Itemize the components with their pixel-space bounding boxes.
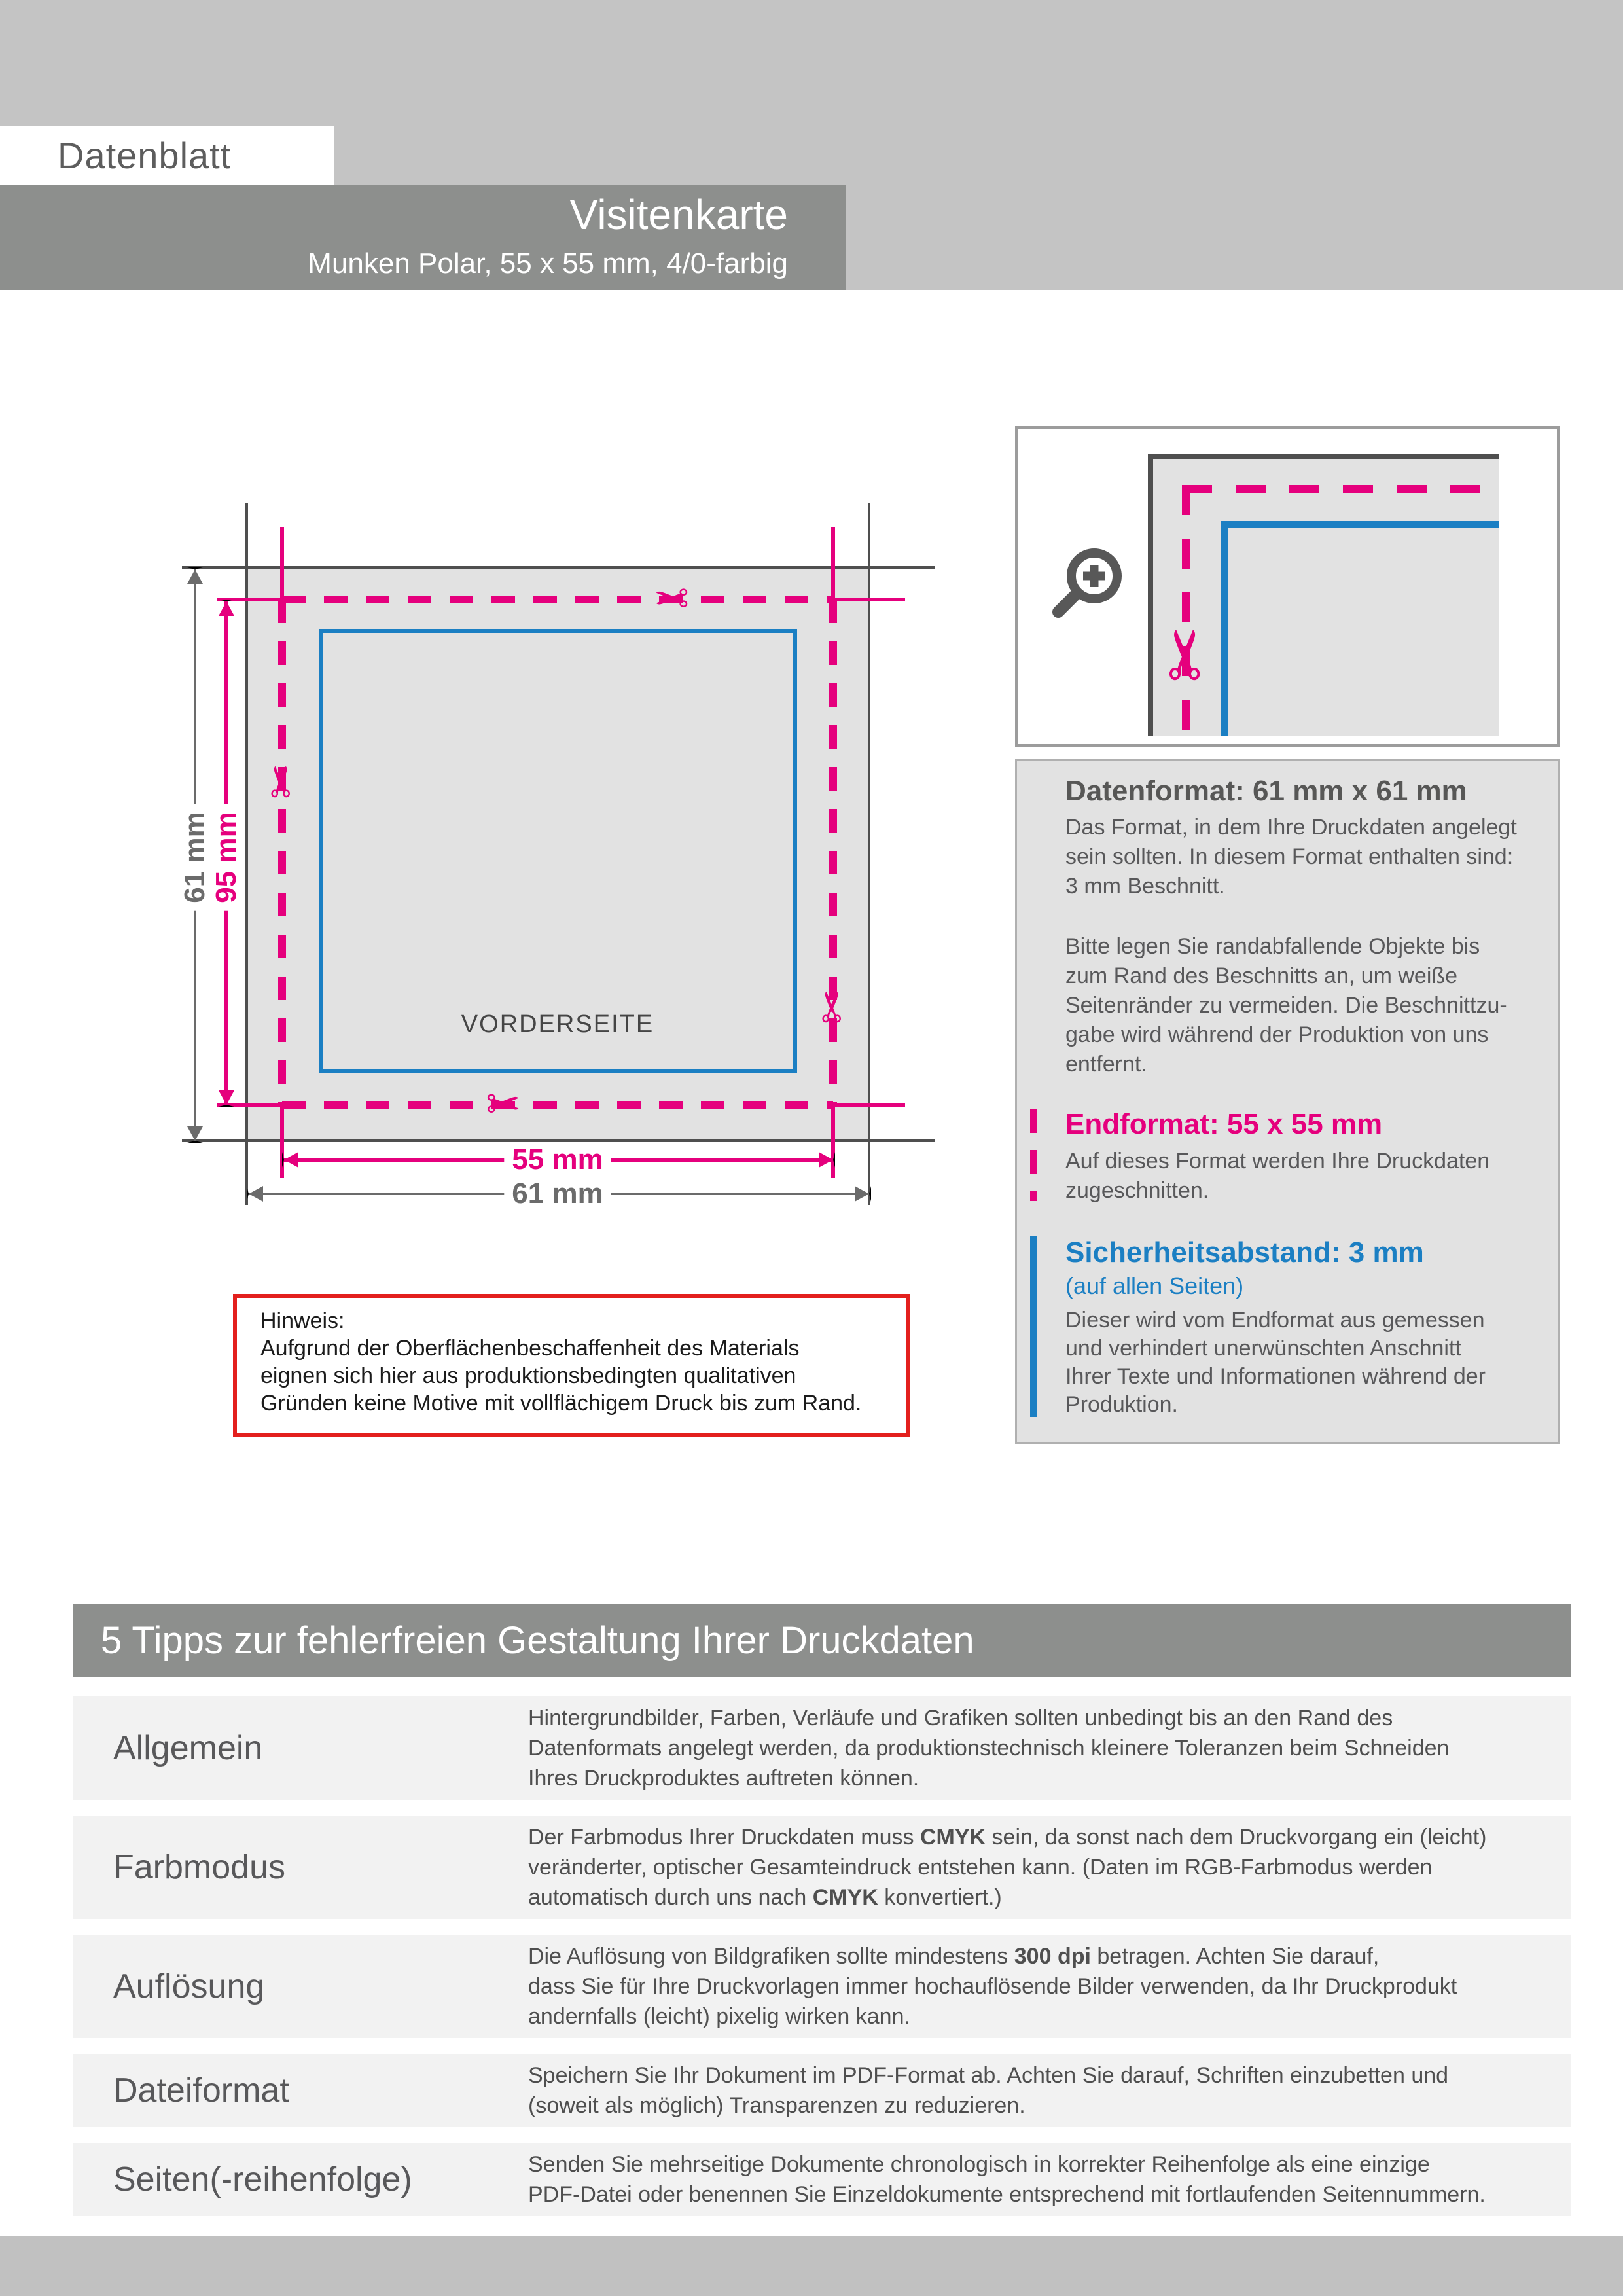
hinweis-title: Hinweis: <box>260 1307 893 1335</box>
arrowhead <box>855 1186 871 1202</box>
zoom-detail-cut-line <box>1182 485 1499 493</box>
arrowhead <box>247 1186 263 1202</box>
endformat-body: Auf dieses Format werden Ihre Druckdaten… <box>1065 1147 1563 1206</box>
zoom-detail-bleed-area <box>1150 456 1499 736</box>
endformat-heading: Endformat: 55 x 55 mm <box>1065 1108 1382 1141</box>
datenblatt-label: Datenblatt <box>58 134 231 177</box>
tip-row-dateiformat: Dateiformat Speichern Sie Ihr Dokument i… <box>73 2054 1571 2127</box>
tip-row-aufloesung: Auflösung Die Auflösung von Bildgrafiken… <box>73 1935 1571 2038</box>
scissors-icon: ✂ <box>654 579 689 620</box>
zoom-detail-safety-line <box>1221 521 1499 528</box>
product-title: Visitenkarte <box>0 185 788 245</box>
dimension-label-55mm-horizontal: 55 mm <box>504 1142 611 1177</box>
tip-row-farbmodus: Farbmodus Der Farbmodus Ihrer Druckdaten… <box>73 1816 1571 1919</box>
tip-row-seitenreihenfolge: Seiten(-reihenfolge) Senden Sie mehrseit… <box>73 2143 1571 2216</box>
tip-row-text: Speichern Sie Ihr Dokument im PDF-Format… <box>528 2060 1614 2121</box>
hinweis-note-box: Hinweis: Aufgrund der Oberflächenbeschaf… <box>233 1294 910 1437</box>
safety-marker <box>1030 1236 1037 1417</box>
arrowhead <box>219 600 234 616</box>
zoom-detail-crop-mark <box>1148 454 1499 459</box>
endformat-cut-marker <box>1030 1109 1037 1201</box>
dimension-label-61mm-horizontal: 61 mm <box>504 1176 611 1211</box>
arrowhead <box>282 1152 298 1168</box>
cut-extension <box>280 527 284 600</box>
dimension-label-61mm-vertical: 61 mm <box>177 804 213 910</box>
cut-extension <box>833 598 905 601</box>
tip-row-text: Der Farbmodus Ihrer Druckdaten muss CMYK… <box>528 1822 1614 1912</box>
cut-line-bottom <box>282 1101 833 1109</box>
datenformat-heading: Datenformat: 61 mm x 61 mm <box>1065 775 1467 808</box>
tip-row-label: Dateiformat <box>113 2054 289 2127</box>
datasheet-page: Datenblatt Visitenkarte Munken Polar, 55… <box>0 0 1623 2296</box>
scissors-icon: ✂ <box>486 1084 521 1126</box>
footer-band <box>0 2236 1623 2296</box>
tip-row-text: Senden Sie mehrseitige Dokumente chronol… <box>528 2149 1614 2210</box>
crop-mark-left <box>245 503 248 1205</box>
zoom-detail-crop-mark <box>1148 454 1153 736</box>
tip-row-label: Seiten(-reihenfolge) <box>113 2143 412 2216</box>
tip-row-label: Auflösung <box>113 1935 264 2038</box>
crop-mark-top <box>182 566 935 569</box>
product-specs: Munken Polar, 55 x 55 mm, 4/0-farbig <box>0 245 788 283</box>
scissors-icon: ✂ <box>1152 626 1220 683</box>
sicherheitsabstand-heading: Sicherheitsabstand: 3 mm <box>1065 1236 1424 1269</box>
dimension-label-95mm-vertical: 95 mm <box>209 804 244 910</box>
cut-line-top <box>282 596 833 603</box>
cut-extension <box>831 527 835 600</box>
datenblatt-label-box: Datenblatt <box>0 126 334 185</box>
datenformat-body-2: Bitte legen Sie randabfallende Objekte b… <box>1065 932 1563 1079</box>
arrowhead <box>187 1126 203 1143</box>
scissors-icon: ✂ <box>261 764 303 799</box>
crop-mark-right <box>868 503 870 1205</box>
front-side-label: VORDERSEITE <box>394 1011 721 1039</box>
tips-title: 5 Tipps zur fehlerfreien Gestaltung Ihre… <box>101 1619 974 1662</box>
zoom-detail-cut-line <box>1182 485 1190 736</box>
scissors-icon: ✂ <box>812 989 854 1024</box>
arrowhead <box>819 1152 835 1168</box>
hinweis-body: Aufgrund der Oberflächenbeschaffenheit d… <box>260 1335 893 1417</box>
datenformat-body-1: Das Format, in dem Ihre Druckdaten angel… <box>1065 813 1563 901</box>
tip-row-text: Die Auflösung von Bildgrafiken sollte mi… <box>528 1941 1614 2032</box>
safety-area-border <box>319 629 797 1073</box>
tip-row-allgemein: Allgemein Hintergrundbilder, Farben, Ver… <box>73 1696 1571 1800</box>
tip-row-label: Allgemein <box>113 1696 262 1800</box>
sicherheitsabstand-subheading: (auf allen Seiten) <box>1065 1271 1563 1300</box>
sicherheitsabstand-body: Dieser wird vom Endformat aus gemessen u… <box>1065 1306 1563 1419</box>
tip-row-text: Hintergrundbilder, Farben, Verläufe und … <box>528 1703 1614 1793</box>
cut-line-left <box>278 600 286 1105</box>
tips-title-band: 5 Tipps zur fehlerfreien Gestaltung Ihre… <box>73 1604 1571 1677</box>
arrowhead <box>219 1090 234 1107</box>
product-title-box: Visitenkarte Munken Polar, 55 x 55 mm, 4… <box>0 185 846 290</box>
cut-line-right <box>829 600 837 1105</box>
cut-extension <box>833 1103 905 1107</box>
magnifier-plus-icon <box>1047 542 1128 623</box>
tip-row-label: Farbmodus <box>113 1816 285 1919</box>
arrowhead <box>187 567 203 584</box>
